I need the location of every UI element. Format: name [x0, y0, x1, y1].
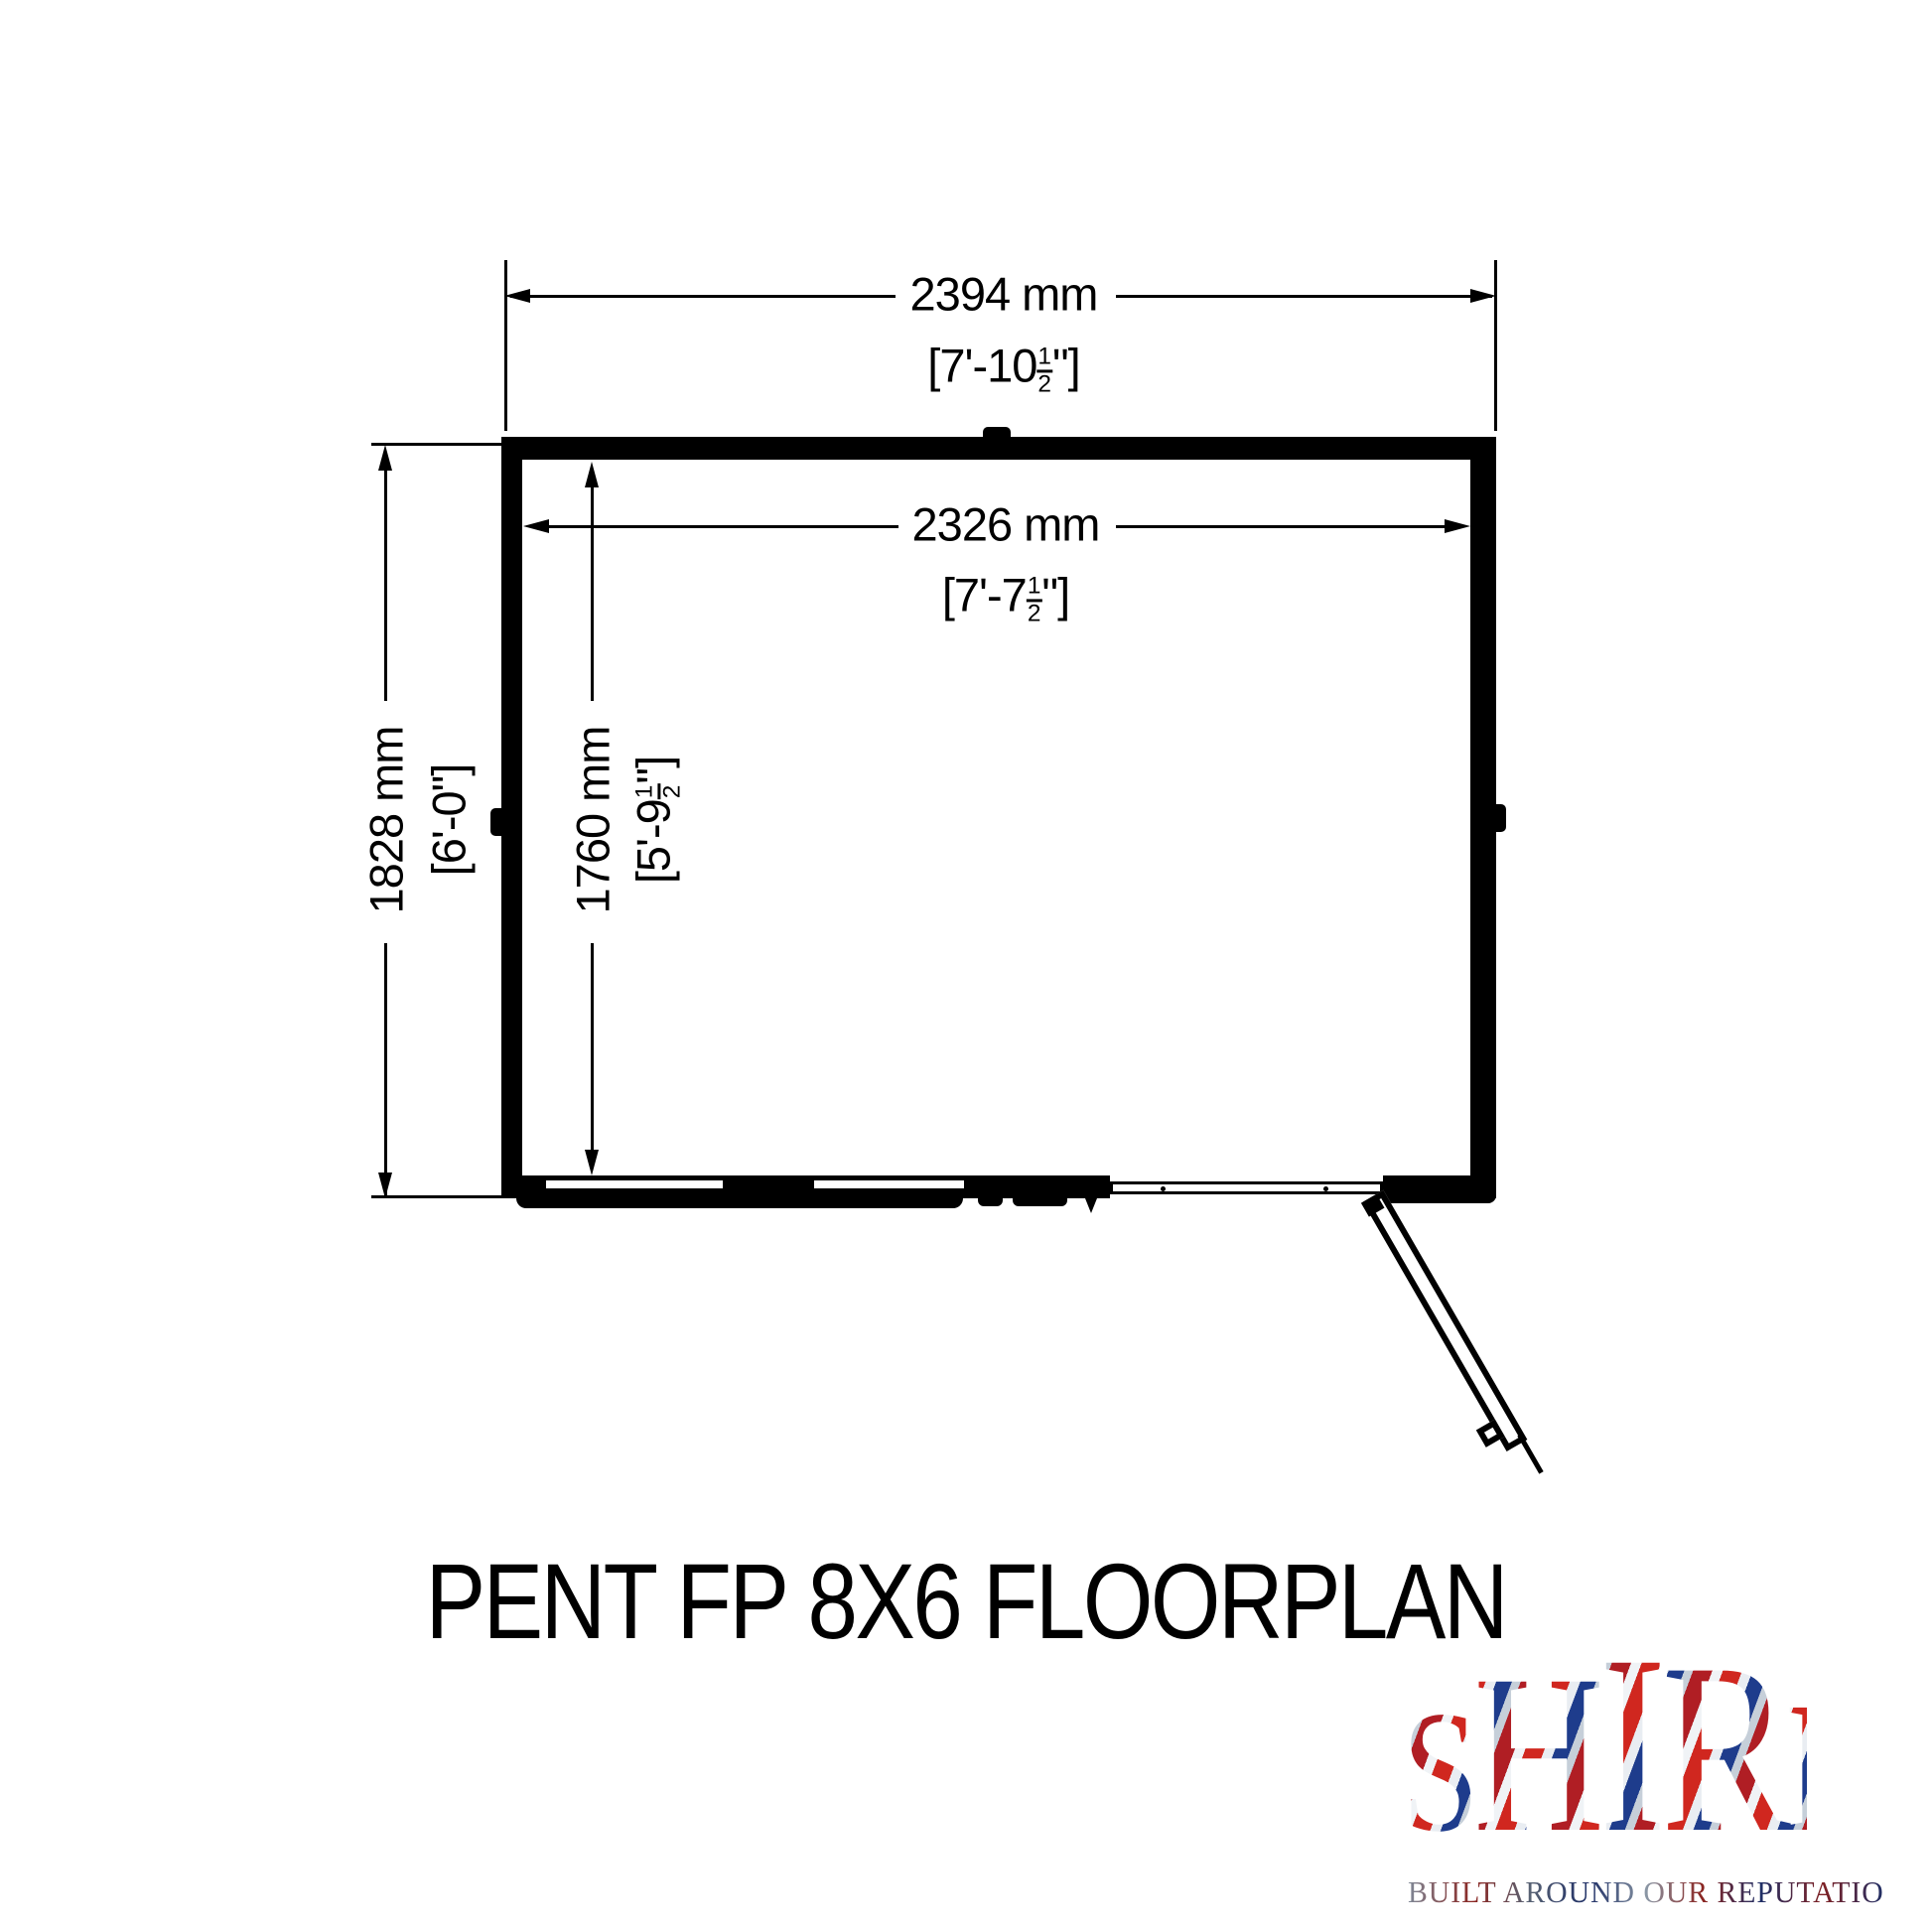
- floorplan-canvas: 2394 mm [7'-1012"] 2326 mm [7'-712"] 182…: [0, 0, 1932, 1932]
- sill-notch: [1085, 1198, 1097, 1213]
- door-threshold: [1110, 1181, 1383, 1194]
- threshold-dot: [1323, 1186, 1328, 1191]
- dim-line-outer-width-b: [1116, 295, 1492, 298]
- ext-line-outer-width-left: [504, 260, 507, 431]
- door-handle: [1476, 1420, 1505, 1448]
- outer-width-metric-label: 2394 mm: [910, 267, 1098, 322]
- brand-logo-wordmark: SHIRE: [1402, 1629, 1807, 1859]
- sill-tab-1: [978, 1198, 1003, 1206]
- brand-logo: SHIRE: [1402, 1629, 1908, 1877]
- inner-width-metric-label: 2326 mm: [912, 497, 1100, 552]
- logo-letter: E: [1785, 1683, 1870, 1851]
- threshold-dot: [1161, 1186, 1166, 1191]
- dim-line-inner-width-a: [545, 525, 898, 528]
- dim-line-outer-height-b: [384, 943, 387, 1197]
- inner-width-imperial-label: [7'-712"]: [942, 567, 1069, 625]
- logo-letter: R: [1661, 1639, 1785, 1859]
- outer-width-imperial-label: [7'-1012"]: [927, 338, 1079, 396]
- arrow-down-icon: [585, 1150, 599, 1175]
- arrow-down-icon: [378, 1173, 392, 1198]
- ext-line-outer-width-right: [1494, 260, 1497, 431]
- arrow-right-icon: [1470, 289, 1496, 303]
- wall-right: [1470, 437, 1496, 1198]
- wall-joint-tab-right: [1494, 804, 1506, 832]
- dim-line-inner-height-a: [591, 483, 594, 701]
- front-sill-ledge: [516, 1198, 963, 1208]
- dim-line-outer-height-a: [384, 467, 387, 701]
- dim-line-outer-width-a: [510, 295, 896, 298]
- arrow-up-icon: [585, 462, 599, 487]
- arrow-left-icon: [504, 289, 530, 303]
- wall-joint-tab-top: [983, 427, 1011, 439]
- drawing-title-text: PENT FP 8X6 FLOORPLAN: [426, 1545, 1506, 1657]
- front-window-slot-2: [814, 1180, 964, 1188]
- dim-line-inner-height-b: [591, 943, 594, 1154]
- logo-letter: S: [1402, 1694, 1473, 1851]
- wall-joint-tab-left: [490, 808, 502, 836]
- wall-left: [501, 437, 522, 1198]
- arrow-up-icon: [378, 445, 392, 471]
- dim-line-inner-width-b: [1116, 525, 1449, 528]
- brand-tagline: BUILT AROUND OUR REPUTATION: [1408, 1874, 1884, 1910]
- logo-letter: H: [1473, 1653, 1598, 1857]
- arrow-right-icon: [1445, 519, 1470, 533]
- sill-tab-2: [1013, 1198, 1067, 1206]
- door-leaf-open: [1363, 1190, 1528, 1451]
- outer-height-metric-label: 1828 mm: [359, 727, 414, 914]
- arrow-left-icon: [523, 519, 549, 533]
- front-window-slot-1: [546, 1180, 723, 1188]
- door-latch-line: [1517, 1434, 1543, 1474]
- logo-letter: I: [1598, 1629, 1661, 1859]
- inner-height-metric-label: 1760 mm: [566, 727, 621, 914]
- outer-height-imperial-label: [6'-0"]: [422, 764, 477, 877]
- wall-bottom-right-corner: [1383, 1175, 1496, 1203]
- wall-top: [501, 437, 1496, 460]
- inner-height-imperial-label: [5'-912"]: [625, 757, 684, 884]
- door-hinge: [1361, 1194, 1385, 1217]
